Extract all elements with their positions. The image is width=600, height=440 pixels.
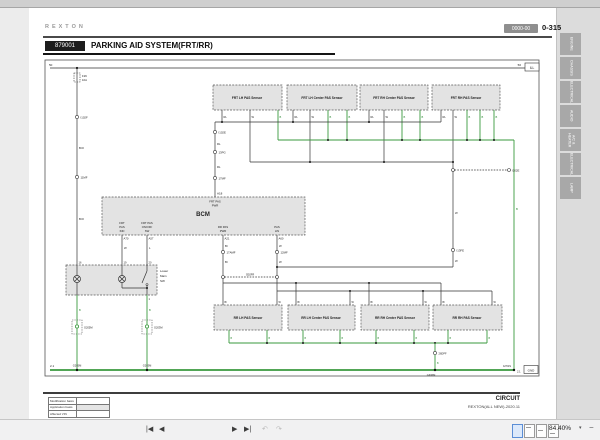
illumination-feed-branch: F26 10A I102F BrO 11MF BrO xyxy=(74,68,88,265)
page-title: PARKING AID SYSTEM(FRT/RR) xyxy=(91,41,213,50)
svg-text:B: B xyxy=(79,308,81,312)
wiring-diagram: 50 50 ILL F26 10A I102F BrO 11MF BrO xyxy=(43,58,542,378)
row-label: Affected VIN xyxy=(49,411,77,417)
svg-text:B: B xyxy=(489,337,491,340)
svg-text:A21: A21 xyxy=(225,237,230,241)
svg-text:BCM: BCM xyxy=(196,212,210,218)
svg-text:RL: RL xyxy=(217,165,221,169)
header-rule xyxy=(43,36,552,38)
previous-view-icon[interactable]: ↶ xyxy=(262,424,268,435)
zoom-level[interactable]: 84.40% xyxy=(549,425,571,432)
svg-text:B: B xyxy=(342,337,344,340)
svg-text:W: W xyxy=(455,211,458,215)
footer-rule xyxy=(43,392,520,394)
svg-text:RR LH PAS Sensor: RR LH PAS Sensor xyxy=(234,316,263,320)
svg-text:Br: Br xyxy=(225,301,228,304)
svg-text:W: W xyxy=(494,301,497,304)
frt-gnd-bus: B xyxy=(278,139,518,370)
page-number: 0-315 xyxy=(542,23,561,32)
svg-text:I102E: I102E xyxy=(219,131,226,135)
svg-text:26DPF: 26DPF xyxy=(439,352,447,356)
svg-text:B: B xyxy=(516,207,518,211)
row-label: Modification basis xyxy=(49,398,77,404)
svg-text:Main: Main xyxy=(160,274,167,278)
svg-text:W: W xyxy=(425,301,428,304)
svg-text:RL: RL xyxy=(295,115,299,119)
tab-engine[interactable]: ENGINE xyxy=(560,33,581,55)
svg-text:Br: Br xyxy=(371,301,374,304)
svg-text:SW: SW xyxy=(145,229,150,233)
svg-text:A60: A60 xyxy=(279,237,284,241)
svg-text:B: B xyxy=(149,308,151,312)
svg-text:RL: RL xyxy=(224,115,228,119)
last-page-button[interactable]: ▶| xyxy=(244,424,251,435)
doc-ref-label: REXTON(ALL NEW)-2020.11 xyxy=(380,404,520,409)
svg-text:2.1: 2.1 xyxy=(50,364,55,368)
svg-text:17AMF: 17AMF xyxy=(227,251,236,255)
svg-text:B: B xyxy=(269,337,271,340)
svg-text:I13FE: I13FE xyxy=(457,249,465,253)
svg-text:B: B xyxy=(404,115,406,119)
svg-text:G701S: G701S xyxy=(503,364,511,368)
svg-text:G306M: G306M xyxy=(427,373,436,377)
svg-text:W: W xyxy=(386,115,389,119)
continuous-layout-icon[interactable] xyxy=(524,424,535,438)
svg-text:W: W xyxy=(124,246,127,250)
tab-lamp[interactable]: LAMP xyxy=(560,177,581,199)
doc-type-label: CIRCUIT xyxy=(400,396,520,402)
svg-text:PWR: PWR xyxy=(220,229,227,233)
switch-ground-wires: B G205M B G203M xyxy=(72,295,163,370)
svg-text:50: 50 xyxy=(49,63,53,67)
zoom-chevron-icon[interactable]: ▾ xyxy=(579,425,582,431)
svg-text:B: B xyxy=(437,362,439,365)
svg-text:G203M: G203M xyxy=(143,364,152,368)
row-value xyxy=(77,398,109,404)
svg-text:B: B xyxy=(496,115,498,119)
svg-text:I302FR: I302FR xyxy=(246,273,255,277)
svg-text:B: B xyxy=(450,337,452,340)
pas-switch-box: 16 19 20 Lower Main SW 1 xyxy=(66,261,168,302)
svg-text:B: B xyxy=(330,115,332,119)
svg-text:Br: Br xyxy=(225,260,228,264)
svg-text:W: W xyxy=(279,260,282,264)
next-page-button[interactable]: ▶ xyxy=(232,424,237,435)
svg-text:W: W xyxy=(455,259,458,263)
svg-text:L: L xyxy=(149,246,151,250)
title-underline xyxy=(43,53,335,55)
svg-text:W: W xyxy=(352,301,355,304)
svg-text:10A: 10A xyxy=(82,78,87,82)
svg-text:Br: Br xyxy=(443,301,446,304)
frt-sensor-wiring: RL W B RL W B B RL W B B xyxy=(222,110,498,267)
svg-text:SW: SW xyxy=(160,279,165,283)
row-label: Application basis xyxy=(49,405,77,411)
svg-text:B: B xyxy=(231,337,233,340)
svg-text:W: W xyxy=(252,115,255,119)
svg-text:RL: RL xyxy=(217,142,221,146)
rr-gnd-wiring: B B B B B B B B 26DPF B xyxy=(229,330,491,370)
svg-text:W: W xyxy=(455,115,458,119)
svg-text:RL: RL xyxy=(371,115,375,119)
rr-distribution-buses: Br Br Br Br W W W W xyxy=(223,282,497,305)
tab-audio[interactable]: AUDIO xyxy=(560,105,581,127)
pdf-viewer-window: REXTON 0000-00 0-315 879001 PARKING AID … xyxy=(0,0,600,440)
tab-electrical-2[interactable]: ELECTRICAL xyxy=(560,153,581,175)
svg-text:2.1: 2.1 xyxy=(517,370,521,374)
svg-text:Lower: Lower xyxy=(160,269,168,273)
svg-text:FRT RH Center PAS Sensor: FRT RH Center PAS Sensor xyxy=(373,96,415,100)
row-value xyxy=(77,411,109,417)
svg-text:B: B xyxy=(469,115,471,119)
svg-text:11MF: 11MF xyxy=(81,176,88,180)
svg-text:20: 20 xyxy=(149,261,152,265)
ground-bus: 2.1 G205M G203M G306M G701S 2.1 GND xyxy=(50,364,538,377)
svg-text:G205M: G205M xyxy=(84,326,93,330)
single-page-layout-icon[interactable] xyxy=(512,424,523,438)
svg-text:13PG: 13PG xyxy=(219,151,226,155)
svg-text:Br: Br xyxy=(225,244,228,248)
rr-sensor-boxes: RR LH PAS Sensor RR LH Center PAS Sensor… xyxy=(214,305,502,330)
viewer-toolbar xyxy=(0,419,600,440)
rexton-logo: REXTON xyxy=(45,24,86,30)
svg-text:ILL: ILL xyxy=(530,66,535,70)
page-left-margin xyxy=(0,8,30,419)
svg-text:LIN: LIN xyxy=(275,229,279,233)
system-code-badge: 879001 xyxy=(45,41,85,51)
svg-text:A57: A57 xyxy=(149,237,154,241)
bcm-module: BCM FRT PAS PWR FRT PAS IND FRT PAS ON/O… xyxy=(102,197,305,235)
svg-text:50: 50 xyxy=(518,63,522,67)
svg-text:RR RH PAS Sensor: RR RH PAS Sensor xyxy=(453,316,483,320)
zoom-out-button[interactable]: − xyxy=(589,423,594,432)
next-view-icon[interactable]: ↷ xyxy=(276,424,282,435)
svg-text:16: 16 xyxy=(79,261,82,265)
svg-text:B: B xyxy=(416,337,418,340)
svg-text:PWR: PWR xyxy=(212,204,219,208)
svg-text:1: 1 xyxy=(149,297,151,301)
svg-text:W: W xyxy=(279,244,282,248)
svg-text:G203M: G203M xyxy=(154,326,163,330)
svg-text:I102E: I102E xyxy=(512,169,519,173)
svg-text:I102F: I102F xyxy=(81,116,88,120)
svg-text:B: B xyxy=(349,115,351,119)
svg-text:RR LH Center PAS Sensor: RR LH Center PAS Sensor xyxy=(301,316,341,320)
svg-text:W: W xyxy=(279,301,282,304)
svg-text:BrO: BrO xyxy=(79,146,85,150)
svg-text:IND: IND xyxy=(120,229,125,233)
window-top-bar xyxy=(0,0,600,8)
svg-text:G205M: G205M xyxy=(73,364,82,368)
frt-sensor-boxes: FRT LH PAS Sensor FRT LH Center PAS Sens… xyxy=(213,85,500,110)
top-power-bus: 50 50 ILL xyxy=(49,63,539,71)
svg-text:FRT RH PAS Sensor: FRT RH PAS Sensor xyxy=(451,96,482,100)
svg-text:B: B xyxy=(280,115,282,119)
svg-text:BrO: BrO xyxy=(79,217,85,221)
previous-page-button[interactable]: ◀ xyxy=(159,424,164,435)
svg-text:W: W xyxy=(312,115,315,119)
svg-text:B: B xyxy=(482,115,484,119)
svg-text:17MF: 17MF xyxy=(219,177,226,181)
svg-text:FRT LH Center PAS Sensor: FRT LH Center PAS Sensor xyxy=(301,96,343,100)
table-row: Affected VIN xyxy=(49,411,109,417)
svg-text:Br: Br xyxy=(298,301,301,304)
svg-text:B: B xyxy=(422,115,424,119)
svg-text:GND: GND xyxy=(528,368,536,372)
section-code-badge: 0000-00 xyxy=(504,24,538,33)
svg-text:12MF: 12MF xyxy=(281,251,288,255)
row-value xyxy=(77,405,109,411)
svg-text:B: B xyxy=(378,337,380,340)
tab-ac-heater[interactable]: A/C & HEATER xyxy=(560,129,581,151)
frt-pwr-bus: I102E RL 13PG RL 17MF A18 xyxy=(213,121,441,197)
svg-text:19: 19 xyxy=(124,261,127,265)
svg-text:FRT LH PAS Sensor: FRT LH PAS Sensor xyxy=(232,96,263,100)
svg-text:RR RH Center PAS Sensor: RR RH Center PAS Sensor xyxy=(375,316,416,320)
svg-text:A70: A70 xyxy=(124,237,129,241)
svg-text:A18: A18 xyxy=(217,192,223,196)
svg-text:B: B xyxy=(305,337,307,340)
svg-text:RL: RL xyxy=(443,115,447,119)
two-page-layout-icon[interactable] xyxy=(536,424,547,438)
tab-chassis[interactable]: CHASSIS xyxy=(560,57,581,79)
revision-table: Modification basis Application basis Aff… xyxy=(48,397,110,418)
first-page-button[interactable]: |◀ xyxy=(146,424,153,435)
tab-electrical-1[interactable]: ELECTRICAL xyxy=(560,81,581,103)
